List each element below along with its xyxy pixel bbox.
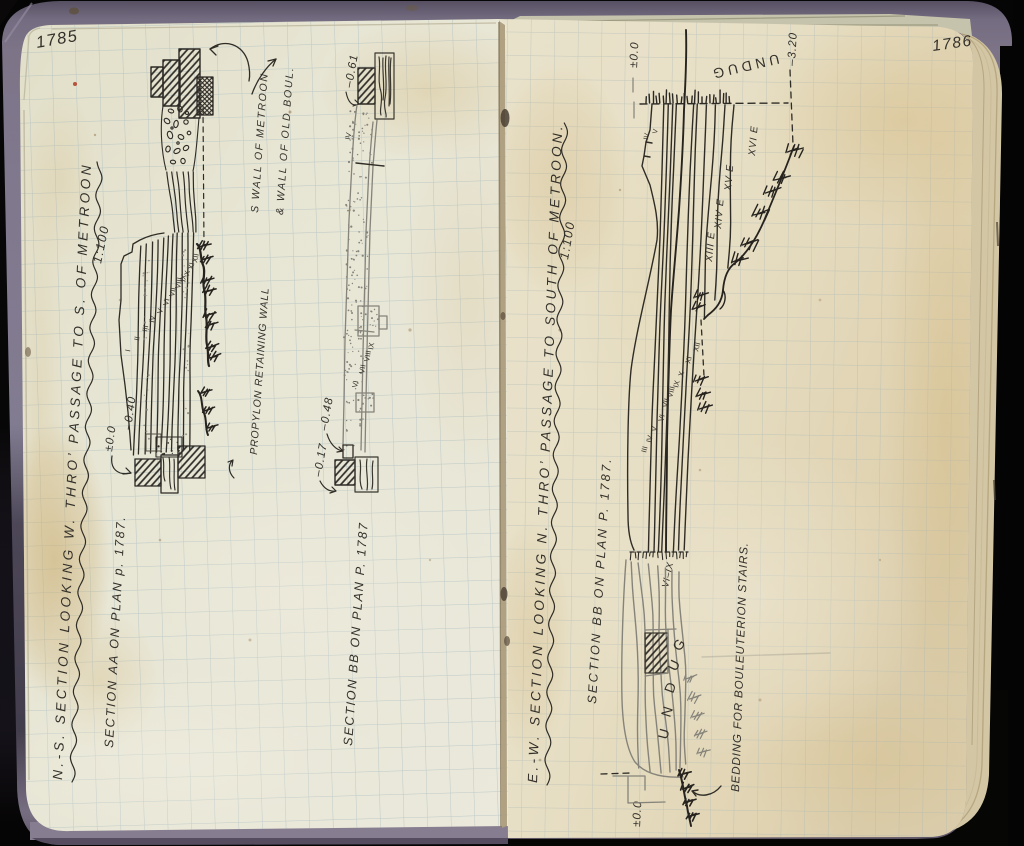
svg-text:±0.0: ±0.0 [631,800,644,827]
svg-text:–3.20: –3.20 [786,32,800,67]
svg-text:±0.0: ±0.0 [628,41,641,68]
svg-text:VIII: VIII [362,350,373,363]
svg-text:XII: XII [190,253,201,264]
svg-text:VII: VII [357,364,367,375]
